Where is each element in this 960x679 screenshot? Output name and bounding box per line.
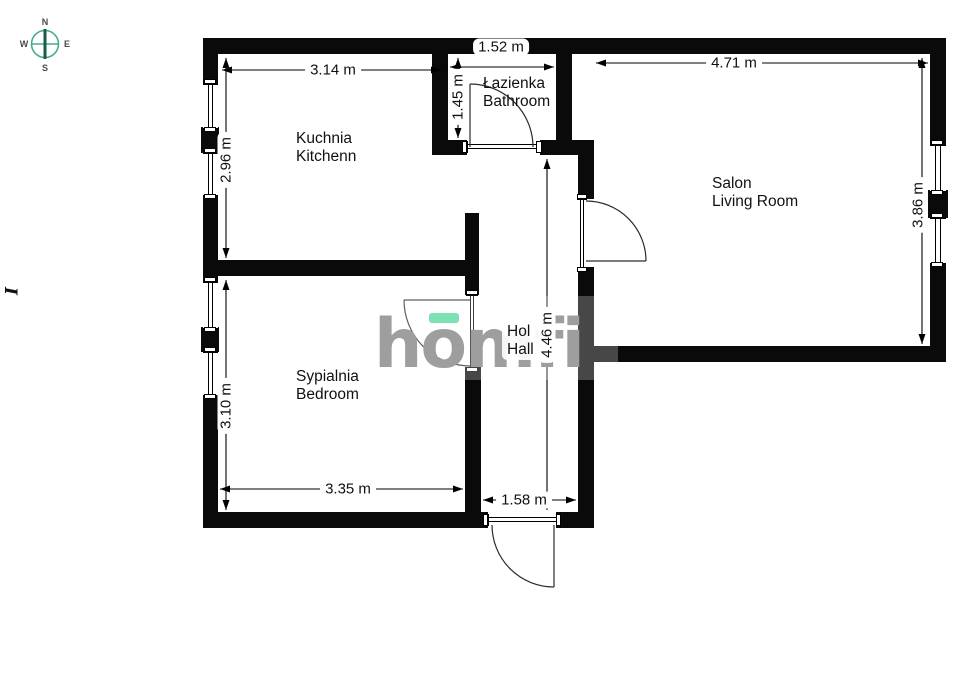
dim-label-bathroom-h: 1.45 m [450, 69, 467, 125]
dim-label-living-w: 4.71 m [706, 55, 762, 72]
room-label-bathroom: Łazienka Bathroom [483, 75, 550, 111]
room-name-en: Bedroom [296, 386, 359, 404]
room-name-pl: Kuchnia [296, 130, 356, 148]
room-name-en: Living Room [712, 193, 798, 211]
room-label-hall: Hol Hall [502, 322, 539, 360]
living-door-arc [586, 201, 646, 261]
dim-label-bathroom-w: 1.52 m [473, 39, 529, 56]
room-name-en: Hall [507, 341, 534, 359]
room-name-pl: Łazienka [483, 75, 550, 93]
floor-plan-page: N S W E I [0, 0, 960, 679]
room-name-pl: Salon [712, 175, 798, 193]
dim-label-kitchen-w: 3.14 m [305, 62, 361, 79]
entrance-door-arc [492, 525, 554, 587]
room-label-kitchen: Kuchnia Kitchenn [296, 130, 356, 166]
dim-label-bedroom-h: 3.10 m [218, 378, 235, 434]
room-name-en: Bathroom [483, 93, 550, 111]
room-label-bedroom: Sypialnia Bedroom [296, 368, 359, 404]
dim-label-entrance-w: 1.58 m [496, 492, 552, 509]
room-name-en: Kitchenn [296, 148, 356, 166]
dim-label-kitchen-h: 2.96 m [218, 132, 235, 188]
homfi-watermark: homfi [368, 296, 618, 380]
dim-label-living-h: 3.86 m [910, 177, 927, 233]
room-name-pl: Sypialnia [296, 368, 359, 386]
dim-label-hall-h: 4.46 m [539, 307, 556, 363]
room-name-pl: Hol [507, 323, 534, 341]
dimension-lines [220, 58, 928, 510]
homfi-watermark-accent-bar [429, 313, 459, 323]
room-label-living: Salon Living Room [712, 175, 798, 211]
dim-label-bedroom-w: 3.35 m [320, 481, 376, 498]
